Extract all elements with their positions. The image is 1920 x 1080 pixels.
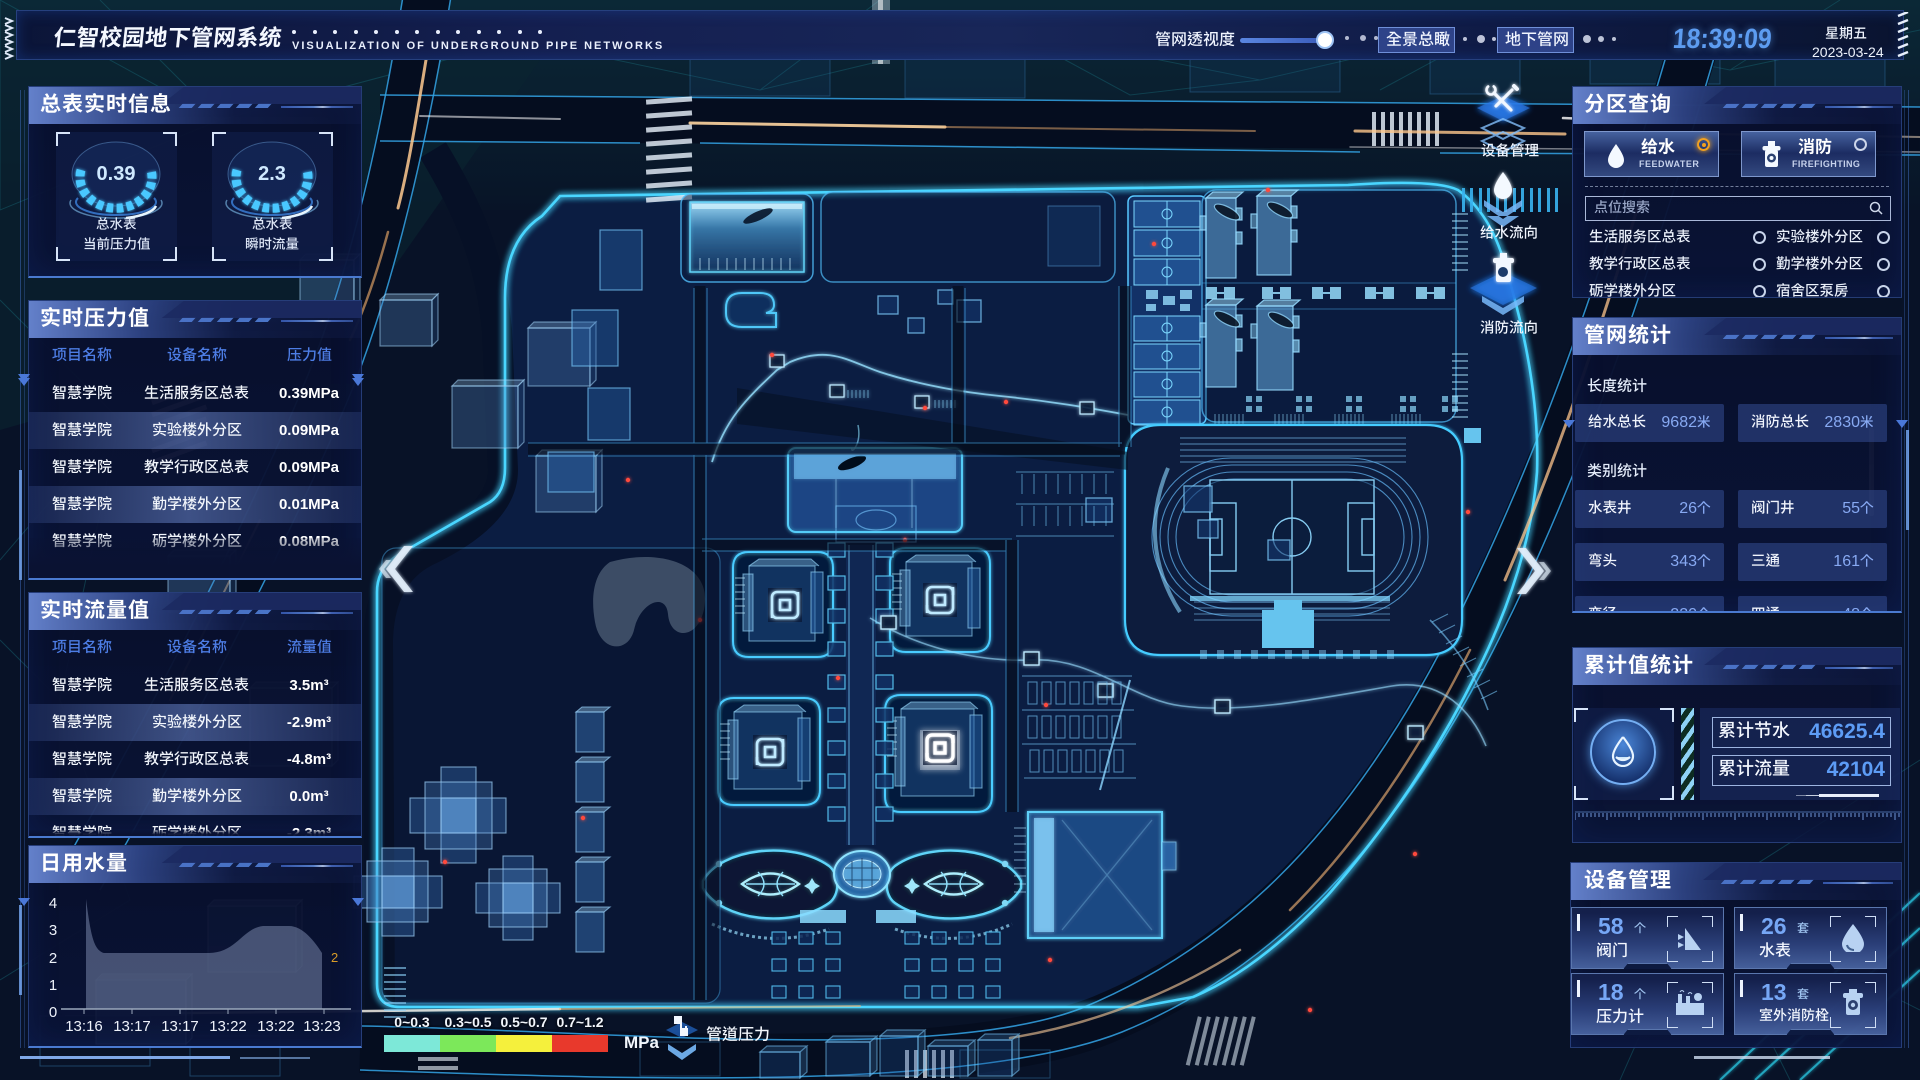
svg-text:0: 0 <box>49 1004 57 1021</box>
svg-text:4: 4 <box>49 895 57 912</box>
svg-text:13:17: 13:17 <box>161 1018 199 1035</box>
svg-text:2: 2 <box>331 950 338 965</box>
svg-text:13:16: 13:16 <box>65 1018 103 1035</box>
svg-text:13:17: 13:17 <box>113 1018 151 1035</box>
svg-text:2: 2 <box>49 950 57 967</box>
svg-text:2.3: 2.3 <box>258 163 286 185</box>
svg-text:1: 1 <box>49 977 57 994</box>
svg-text:13:22: 13:22 <box>257 1018 295 1035</box>
svg-text:3: 3 <box>49 922 57 939</box>
svg-text:0.39: 0.39 <box>97 163 136 185</box>
svg-text:13:22: 13:22 <box>209 1018 247 1035</box>
svg-text:13:23: 13:23 <box>303 1018 341 1035</box>
